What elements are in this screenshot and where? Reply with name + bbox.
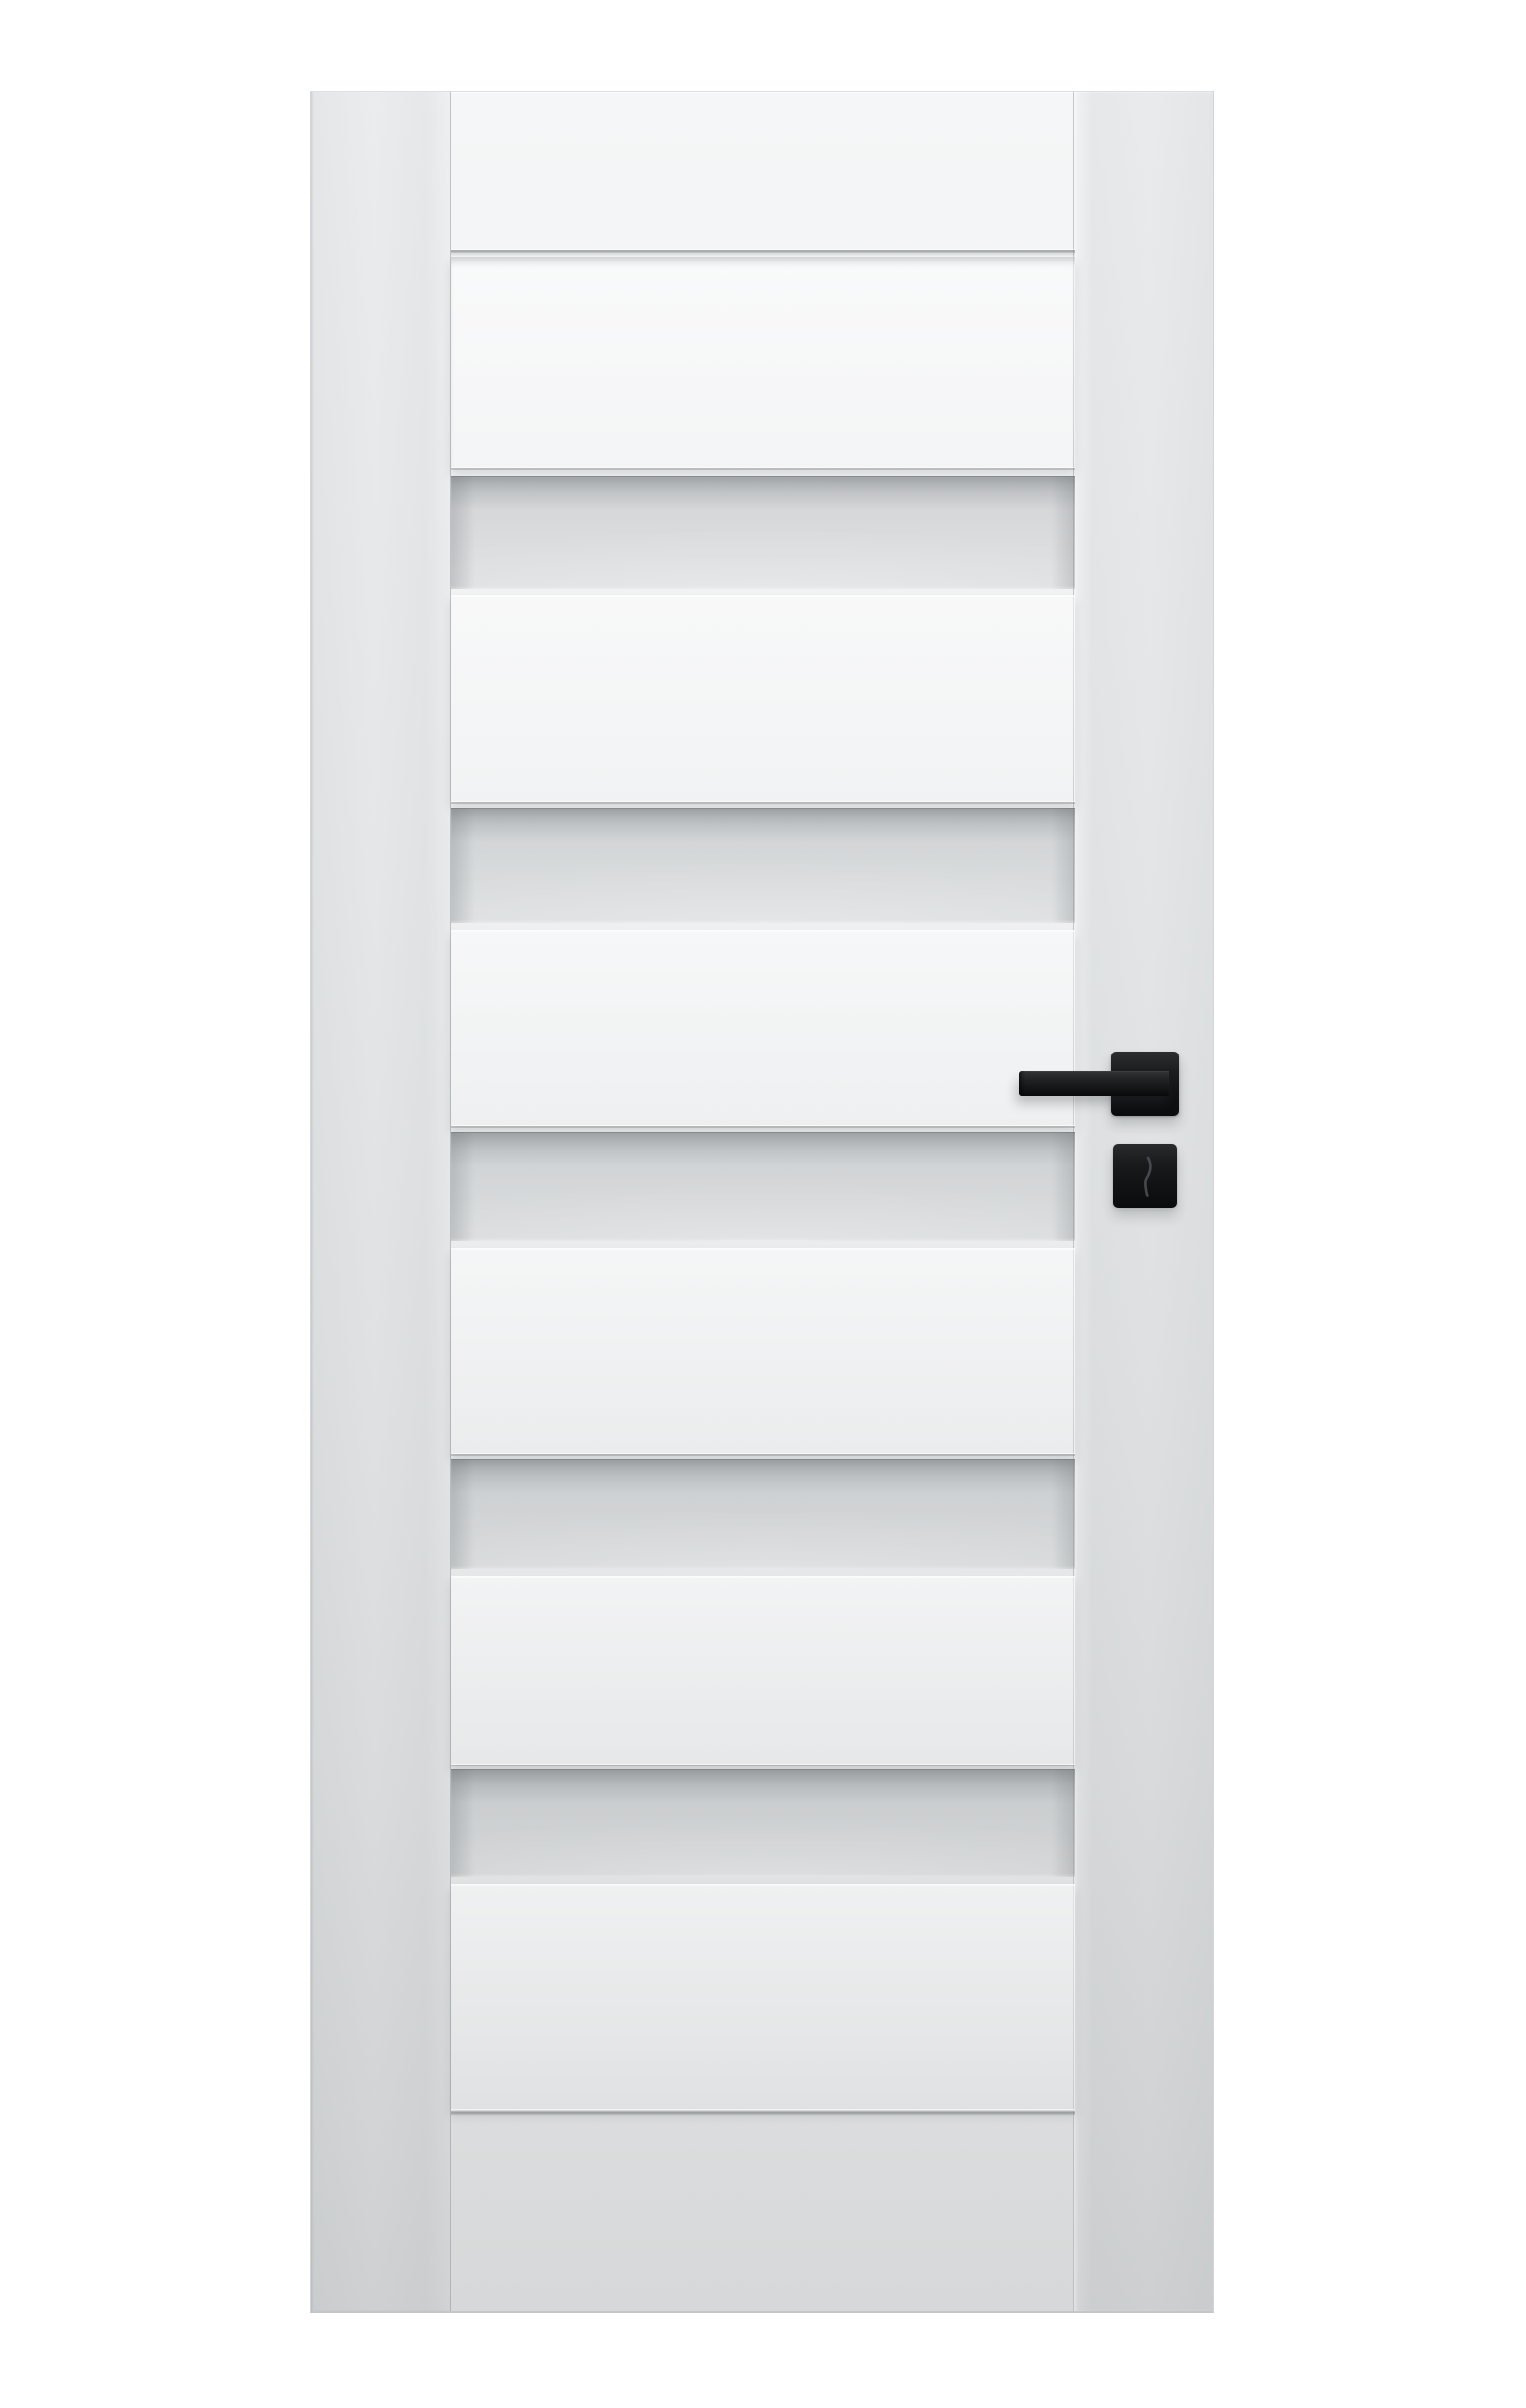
door-panel-5 [451, 1576, 1075, 1765]
door-panel-1 [451, 257, 1075, 468]
product-photo [0, 0, 1526, 2408]
lever-handle [1019, 1071, 1169, 1096]
keyhole-icon [1113, 1144, 1177, 1208]
keyhole-escutcheon [1113, 1144, 1177, 1208]
glass-strip-2 [451, 808, 1075, 923]
glass-strip-3 [451, 1132, 1075, 1241]
bottom-rail-groove [451, 2110, 1075, 2116]
glass-strip-1 [451, 476, 1075, 589]
top-rail-groove [451, 250, 1075, 257]
door-panel-2 [451, 595, 1075, 802]
glass-strip-5 [451, 1769, 1075, 1877]
door [310, 91, 1214, 2313]
door-panel-4 [451, 1248, 1075, 1454]
glass-strip-4 [451, 1459, 1075, 1569]
door-panel-6 [451, 1884, 1075, 2110]
door-left-stile [311, 92, 451, 2311]
door-panel-3 [451, 930, 1075, 1126]
